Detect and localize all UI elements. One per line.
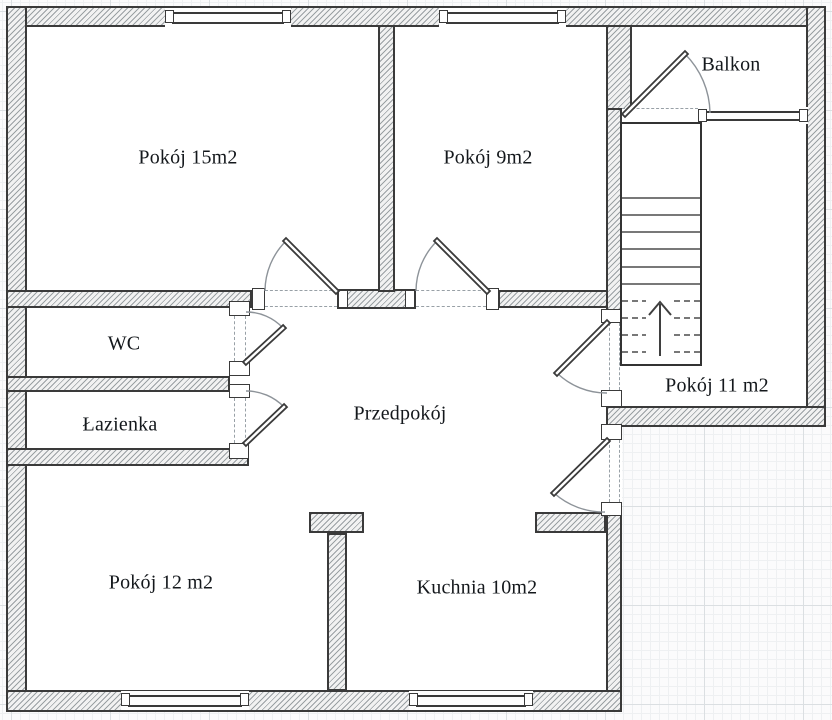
room-label-kuchnia: Kuchnia 10m2 xyxy=(417,577,538,600)
jamb xyxy=(229,361,250,376)
room-label-przedpokoj: Przedpokój xyxy=(353,403,446,426)
window-pokoj15 xyxy=(165,8,291,27)
window-jamb xyxy=(557,10,566,23)
window-line xyxy=(128,705,242,707)
jamb xyxy=(601,502,622,516)
window-jamb xyxy=(698,109,707,122)
opening-door-pokoj15 xyxy=(265,290,337,307)
opening-balkon-door xyxy=(622,108,698,124)
jamb xyxy=(229,384,250,398)
room-label-lazienka: Łazienka xyxy=(83,414,158,437)
wall-kitchen-right xyxy=(606,504,622,692)
jamb xyxy=(229,301,250,316)
window-pokoj9 xyxy=(439,8,566,27)
window-line xyxy=(705,111,801,113)
jamb xyxy=(229,443,249,459)
opening-entrance-door xyxy=(609,440,620,502)
wall-mid-right xyxy=(498,290,622,308)
window-line xyxy=(705,119,801,121)
window-jamb xyxy=(524,693,533,706)
window-jamb xyxy=(439,10,448,23)
wall-kitchen-t-stem xyxy=(327,533,347,691)
wall-kitchen-t-cap xyxy=(309,512,364,533)
wall-outer-right xyxy=(806,6,826,427)
room-label-wc: WC xyxy=(108,333,141,356)
wall-kitchen-top-right xyxy=(535,512,606,533)
opening-door-pokoj11 xyxy=(609,323,620,390)
opening-door-wc xyxy=(234,316,246,361)
window-jamb xyxy=(799,109,808,122)
window-balkon xyxy=(698,107,808,124)
window-jamb xyxy=(282,10,291,23)
wall-between-rooms-top xyxy=(378,25,395,292)
wall-pokoj11-bottom xyxy=(606,406,826,427)
wall-wc-lazienka-divider xyxy=(6,376,230,392)
jamb xyxy=(486,288,499,310)
wall-hall-right-upper xyxy=(606,108,622,316)
opening-door-lazienka xyxy=(234,398,246,443)
window-pokoj12 xyxy=(121,691,249,710)
window-line xyxy=(446,12,559,14)
jamb xyxy=(252,288,265,310)
window-line xyxy=(172,22,284,24)
window-jamb xyxy=(165,10,174,23)
jamb xyxy=(601,309,622,323)
wall-mid-left xyxy=(6,290,252,308)
jamb xyxy=(601,424,622,440)
room-label-balkon: Balkon xyxy=(702,54,761,77)
window-line xyxy=(128,695,242,697)
window-jamb xyxy=(240,693,249,706)
wall-outer-top xyxy=(6,6,826,27)
opening-door-pokoj9 xyxy=(416,290,486,307)
room-label-pokoj15: Pokój 15m2 xyxy=(138,147,237,170)
window-line xyxy=(172,12,284,14)
wall-balkon-left xyxy=(606,25,632,110)
jamb xyxy=(405,290,415,308)
room-label-pokoj11: Pokój 11 m2 xyxy=(665,375,769,398)
jamb xyxy=(601,390,622,407)
window-line xyxy=(446,22,559,24)
window-line xyxy=(416,705,526,707)
wall-outer-left xyxy=(6,6,27,712)
floor-plan: Pokój 15m2 Pokój 9m2 Balkon WC Łazienka … xyxy=(0,0,832,720)
window-jamb xyxy=(121,693,130,706)
jamb xyxy=(338,290,348,308)
window-kuchnia xyxy=(409,691,533,710)
floor-main xyxy=(6,6,622,712)
room-label-pokoj9: Pokój 9m2 xyxy=(443,147,532,170)
window-line xyxy=(416,695,526,697)
wall-lazienka-bottom xyxy=(6,448,249,466)
room-label-pokoj12: Pokój 12 m2 xyxy=(109,572,213,595)
window-jamb xyxy=(409,693,418,706)
